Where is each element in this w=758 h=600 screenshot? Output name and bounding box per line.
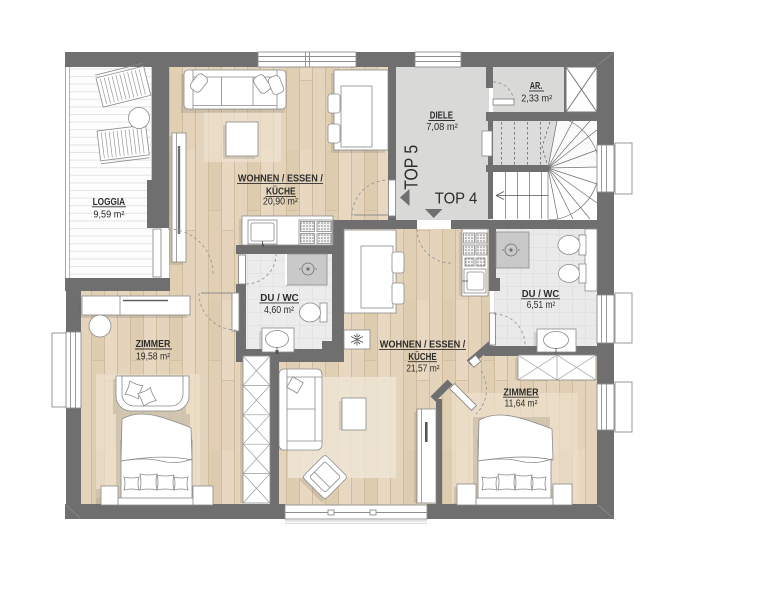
svg-text:7,08 m²: 7,08 m²: [426, 122, 458, 133]
svg-text:ZIMMER: ZIMMER: [136, 339, 171, 350]
svg-text:DIELE: DIELE: [430, 111, 454, 122]
svg-text:DU / WC: DU / WC: [260, 293, 298, 304]
svg-text:19,58 m²: 19,58 m²: [136, 352, 171, 363]
svg-text:11,64 m²: 11,64 m²: [505, 399, 539, 410]
svg-text:20,90 m²: 20,90 m²: [263, 196, 299, 207]
svg-text:6,51 m²: 6,51 m²: [527, 300, 556, 311]
svg-text:TOP 4: TOP 4: [435, 191, 478, 208]
svg-text:DU / WC: DU / WC: [522, 289, 560, 300]
svg-text:AR.: AR.: [530, 81, 543, 92]
svg-text:TOP 5: TOP 5: [402, 145, 422, 190]
svg-text:21,57 m²: 21,57 m²: [406, 364, 440, 375]
svg-text:2,33 m²: 2,33 m²: [521, 93, 553, 104]
svg-text:9,59 m²: 9,59 m²: [93, 210, 125, 221]
svg-text:4,60 m²: 4,60 m²: [264, 305, 295, 316]
